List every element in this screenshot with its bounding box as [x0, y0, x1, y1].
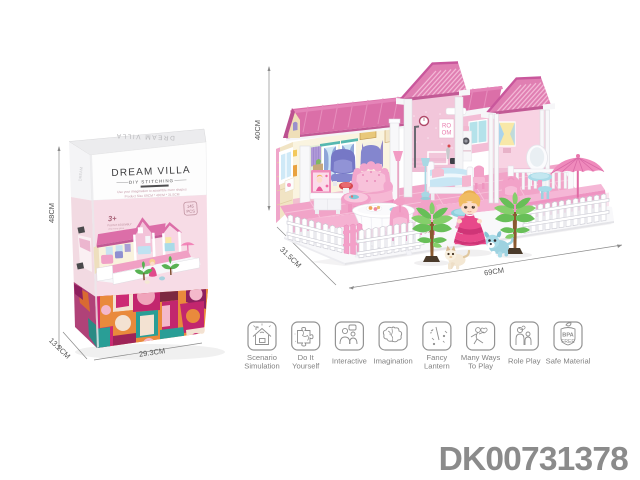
svg-text:Yourself: Yourself — [292, 362, 320, 371]
svg-text:FREE: FREE — [561, 339, 575, 345]
svg-text:Simulation: Simulation — [244, 362, 279, 371]
svg-text:Imagination: Imagination — [373, 357, 412, 366]
svg-text:48CM: 48CM — [47, 203, 56, 223]
svg-text:Role Play: Role Play — [508, 357, 541, 366]
svg-text:Interactive: Interactive — [332, 357, 367, 366]
svg-text:RO: RO — [442, 124, 451, 130]
svg-text:Safe Material: Safe Material — [546, 357, 591, 366]
svg-text:OM: OM — [442, 131, 452, 137]
svg-text:To Play: To Play — [468, 362, 493, 371]
svg-text:DK00731378: DK00731378 — [439, 441, 629, 478]
svg-text:3+: 3+ — [108, 214, 118, 223]
svg-text:Lantern: Lantern — [424, 362, 450, 371]
svg-text:BPA: BPA — [562, 333, 573, 339]
svg-text:40CM: 40CM — [253, 120, 262, 140]
svg-text:PCS: PCS — [186, 208, 195, 213]
